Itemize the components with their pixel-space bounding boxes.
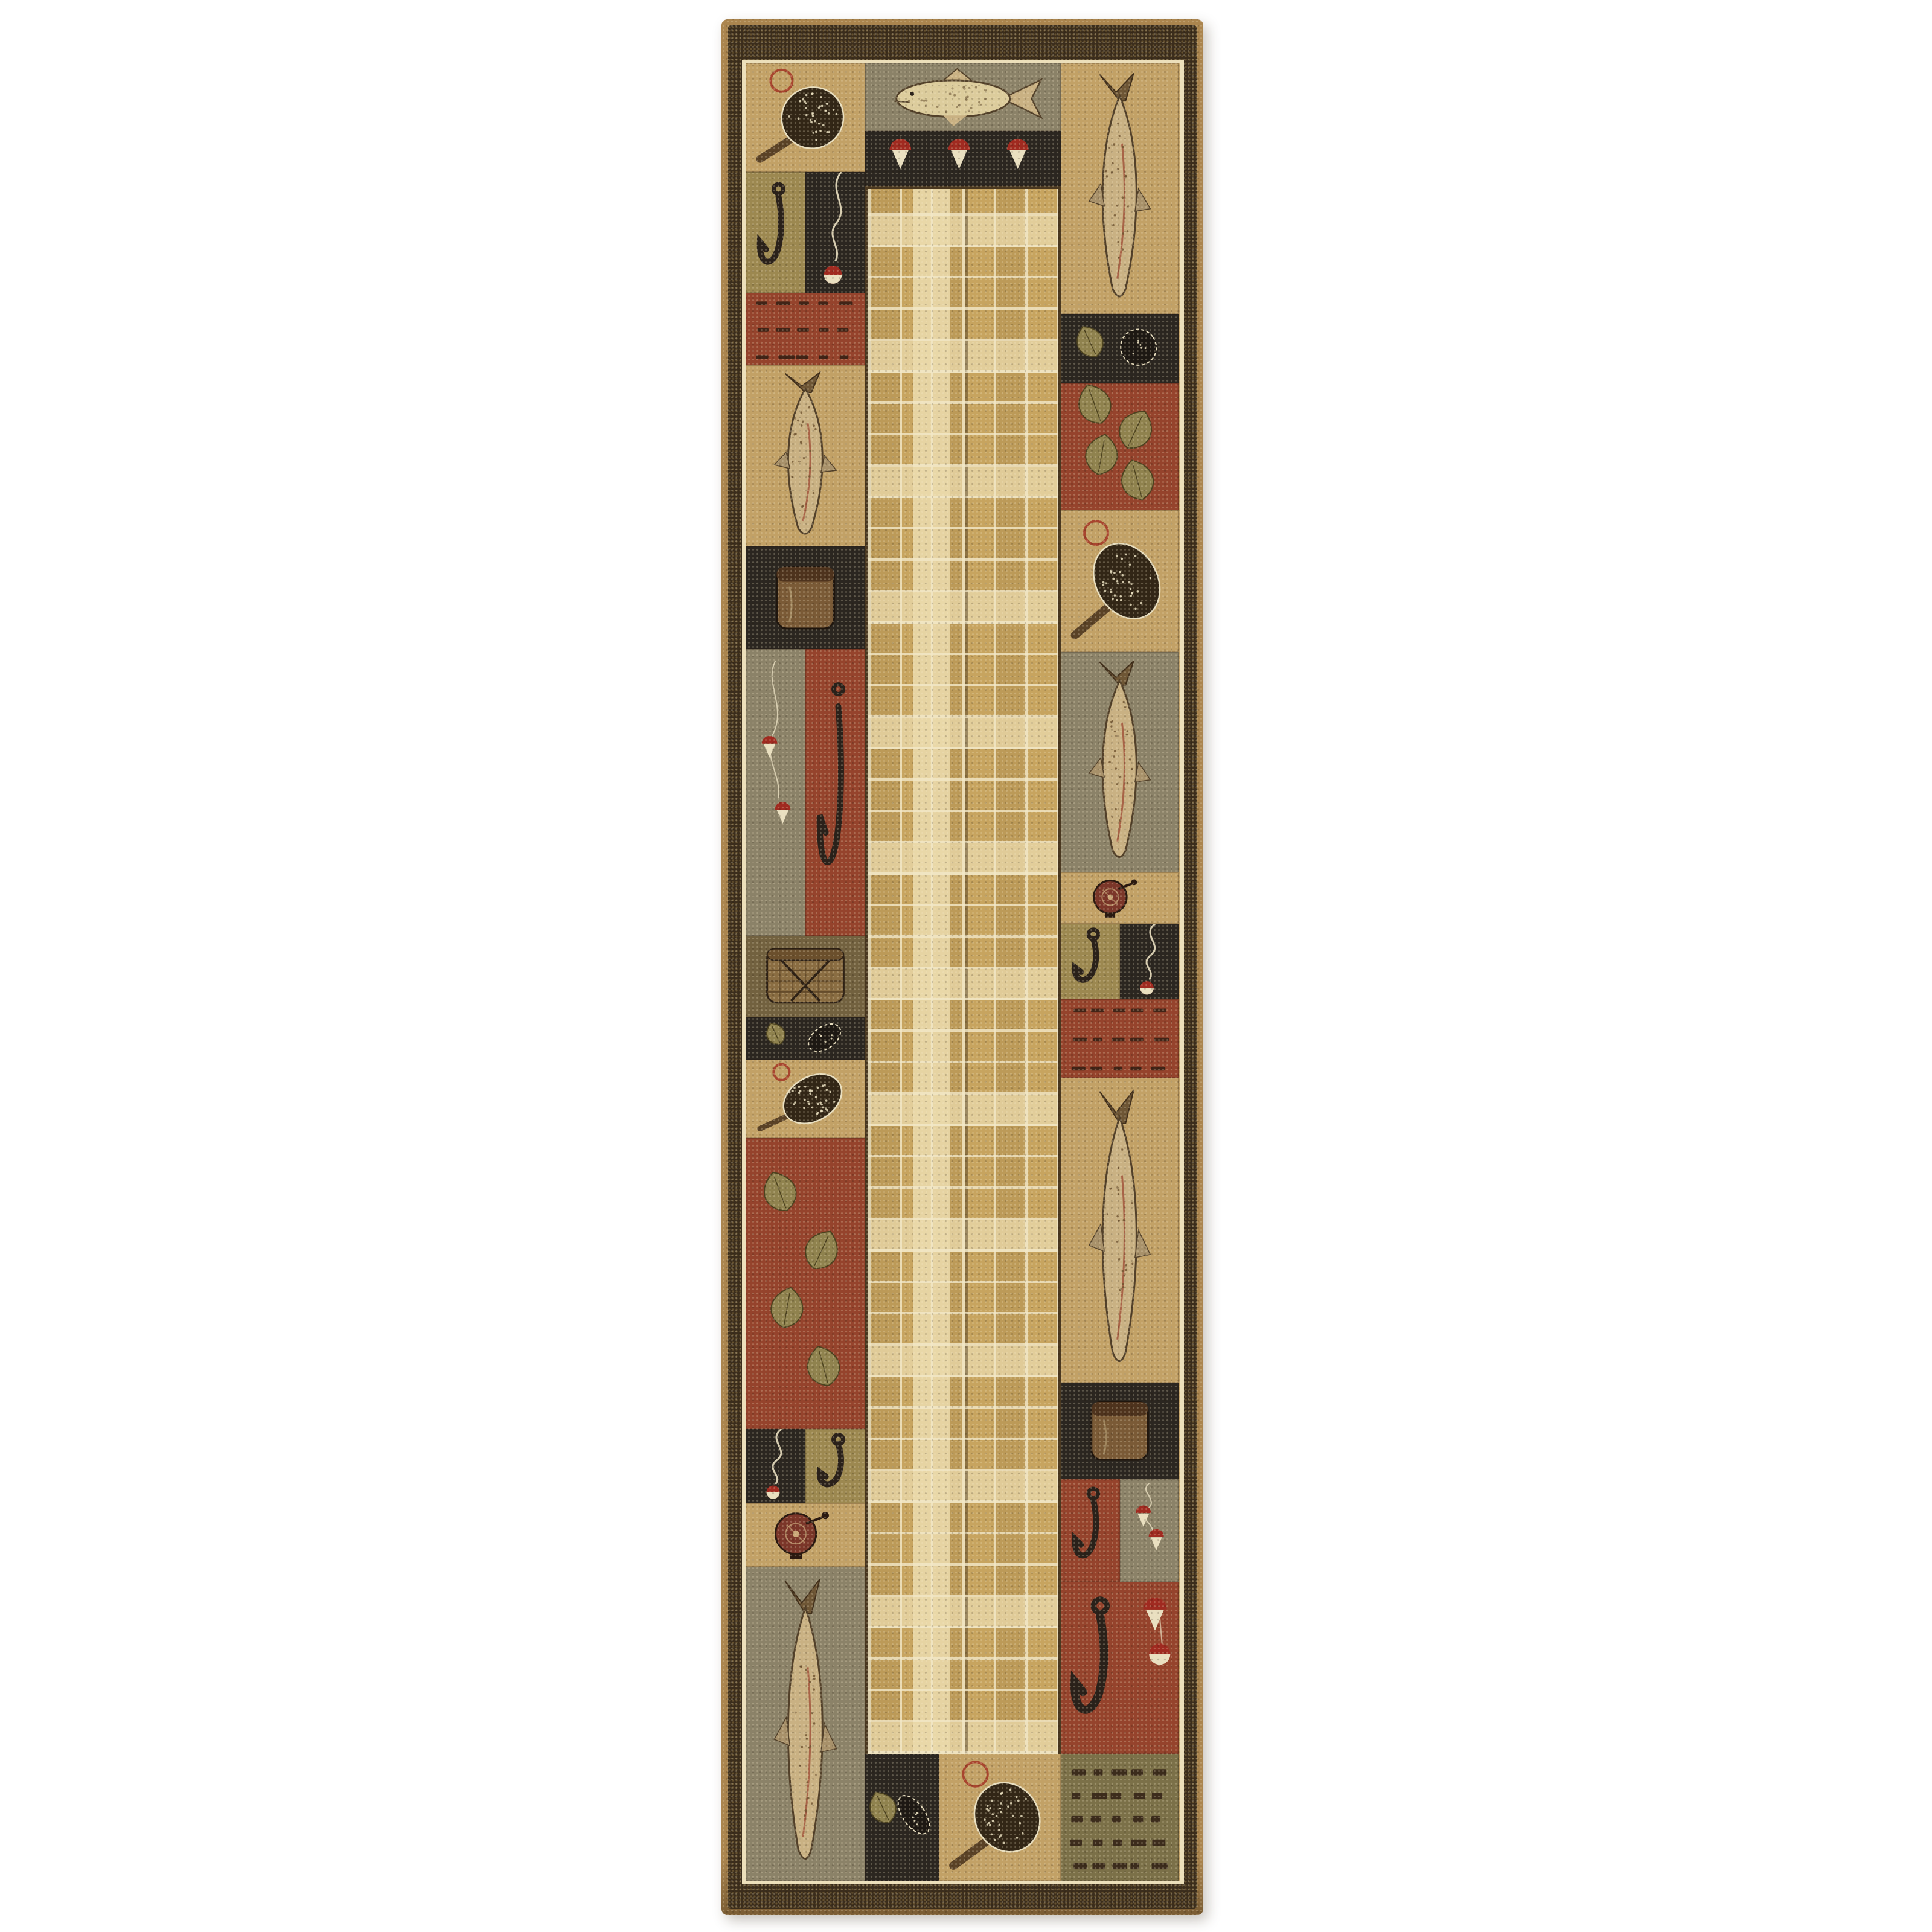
rug-cell-left-reel <box>746 1503 865 1567</box>
rug-cell-left-creeltext-1 <box>746 293 865 365</box>
rug-cell-right-hook-1 <box>1061 924 1120 999</box>
rug-cell-left-net-2 <box>746 1060 865 1138</box>
rug-cell-right-hook-2 <box>1061 1479 1120 1582</box>
rug-cell-left-linebobber-1 <box>805 172 865 293</box>
rug-cell-left-smokebobbers <box>746 649 805 936</box>
rug-cell-right-net <box>1061 510 1179 652</box>
rug-cell-right-reel <box>1061 872 1179 924</box>
rug-cell-right-fish-3 <box>1061 1078 1179 1383</box>
rug-cell-right-leaves <box>1061 383 1179 510</box>
rug-cell-right-smokebobbers <box>1120 1479 1179 1582</box>
photo-canvas <box>0 0 1932 1932</box>
rug-cell-right-fish-2 <box>1061 652 1179 872</box>
rug-plaid-center <box>865 186 1061 1754</box>
rug-cell-left-leaves <box>746 1138 865 1429</box>
rug-cell-right-creeltext <box>1061 999 1179 1078</box>
rug-cell-top-bobbers <box>865 131 1061 186</box>
rug-cell-left-linebobber-2 <box>746 1429 805 1503</box>
rug-cell-bottom-net <box>939 1754 1061 1881</box>
rug-cell-right-canister <box>1061 1383 1179 1479</box>
rug-cell-left-hook-2 <box>805 649 865 936</box>
rug-cell-right-hookbobber <box>1061 1582 1179 1754</box>
rug-cell-bottom-leaflure <box>865 1754 939 1881</box>
rug-cell-left-leaflure <box>746 1017 865 1060</box>
rug-cell-left-hook-1 <box>746 172 805 293</box>
rug-patchwork <box>742 60 1184 1884</box>
rug-cell-right-fish-1 <box>1061 63 1179 314</box>
rug-cell-left-hook-3 <box>805 1429 865 1503</box>
rug-cell-top-left-net <box>746 63 865 172</box>
rug-cell-left-fish-2 <box>746 1567 865 1881</box>
rug-cell-top-fish-horizontal <box>865 63 1061 131</box>
rug-cell-right-linebobber <box>1120 924 1179 999</box>
rug-image <box>721 19 1203 1915</box>
rug-cell-bottom-creeltext <box>1061 1754 1179 1881</box>
rug-cell-left-canister <box>746 546 865 649</box>
rug-cell-left-fish-1 <box>746 365 865 546</box>
rug-cell-left-creelbasket <box>746 936 865 1017</box>
rug-cell-right-leaflure <box>1061 314 1179 383</box>
